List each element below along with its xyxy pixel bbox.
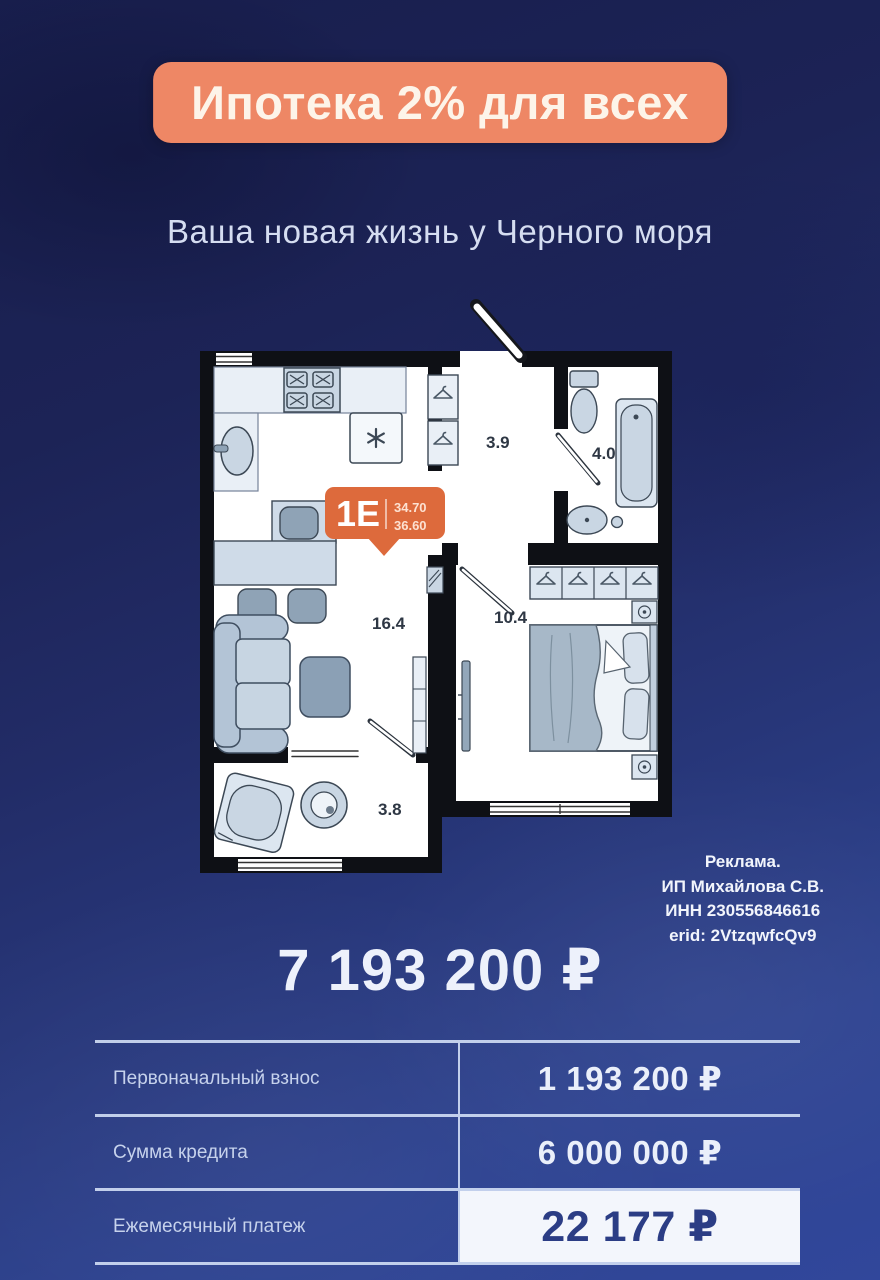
window-icon <box>490 803 630 815</box>
legal-line: Реклама. <box>662 850 825 875</box>
ad-poster: Ипотека 2% для всех Ваша новая жизнь у Ч… <box>0 0 880 1280</box>
window-icon <box>238 859 342 871</box>
table-row-highlighted: Ежемесячный платеж 22 177 ₽ <box>95 1191 800 1265</box>
room-label-living: 16.4 <box>372 614 406 633</box>
row-label: Первоначальный взнос <box>95 1043 460 1114</box>
room-label-hall: 3.9 <box>486 433 510 452</box>
entrance-door-icon <box>476 305 521 357</box>
coffee-table-icon <box>300 657 350 717</box>
row-value: 6 000 000 ₽ <box>460 1117 800 1188</box>
table-row: Сумма кредита 6 000 000 ₽ <box>95 1117 800 1191</box>
chair-icon <box>288 589 326 623</box>
payment-table: Первоначальный взнос 1 193 200 ₽ Сумма к… <box>95 1040 800 1265</box>
shelf-icon <box>413 657 426 753</box>
room-label-bedroom: 10.4 <box>494 608 528 627</box>
nightstand-icon <box>632 601 657 623</box>
unit-area-2: 36.60 <box>394 518 427 533</box>
room-label-laundry: 3.8 <box>378 800 402 819</box>
unit-type: 1Е <box>336 493 380 534</box>
window-icon <box>216 353 252 365</box>
wall-panel-icon <box>427 567 443 593</box>
bathtub-icon <box>616 399 657 507</box>
row-label: Сумма кредита <box>95 1117 460 1188</box>
promo-banner: Ипотека 2% для всех <box>153 62 727 143</box>
room-label-bath: 4.0 <box>592 444 616 463</box>
row-value: 1 193 200 ₽ <box>460 1043 800 1114</box>
table-row: Первоначальный взнос 1 193 200 ₽ <box>95 1043 800 1117</box>
total-price: 7 193 200 ₽ <box>0 936 880 1004</box>
bed-icon <box>530 625 657 751</box>
nightstand-icon <box>632 755 657 779</box>
legal-line: ИНН 230556846616 <box>662 899 825 924</box>
floor-plan: 3.9 4.0 16.4 10.4 3.8 1Е 34.70 36.60 <box>200 297 680 875</box>
sofa-icon <box>214 615 290 753</box>
toilet-icon <box>570 371 598 433</box>
fridge-icon <box>350 413 402 463</box>
chair-icon <box>280 507 318 539</box>
washer-icon <box>301 782 347 828</box>
row-value: 22 177 ₽ <box>460 1191 800 1262</box>
legal-line: ИП Михайлова С.В. <box>662 875 825 900</box>
subtitle: Ваша новая жизнь у Черного моря <box>0 213 880 251</box>
bedroom-wardrobe-icon <box>530 567 658 599</box>
legal-block: Реклама. ИП Михайлова С.В. ИНН 230556846… <box>662 850 825 949</box>
unit-area-1: 34.70 <box>394 500 427 515</box>
row-label: Ежемесячный платеж <box>95 1191 460 1262</box>
stove-icon <box>284 368 340 412</box>
